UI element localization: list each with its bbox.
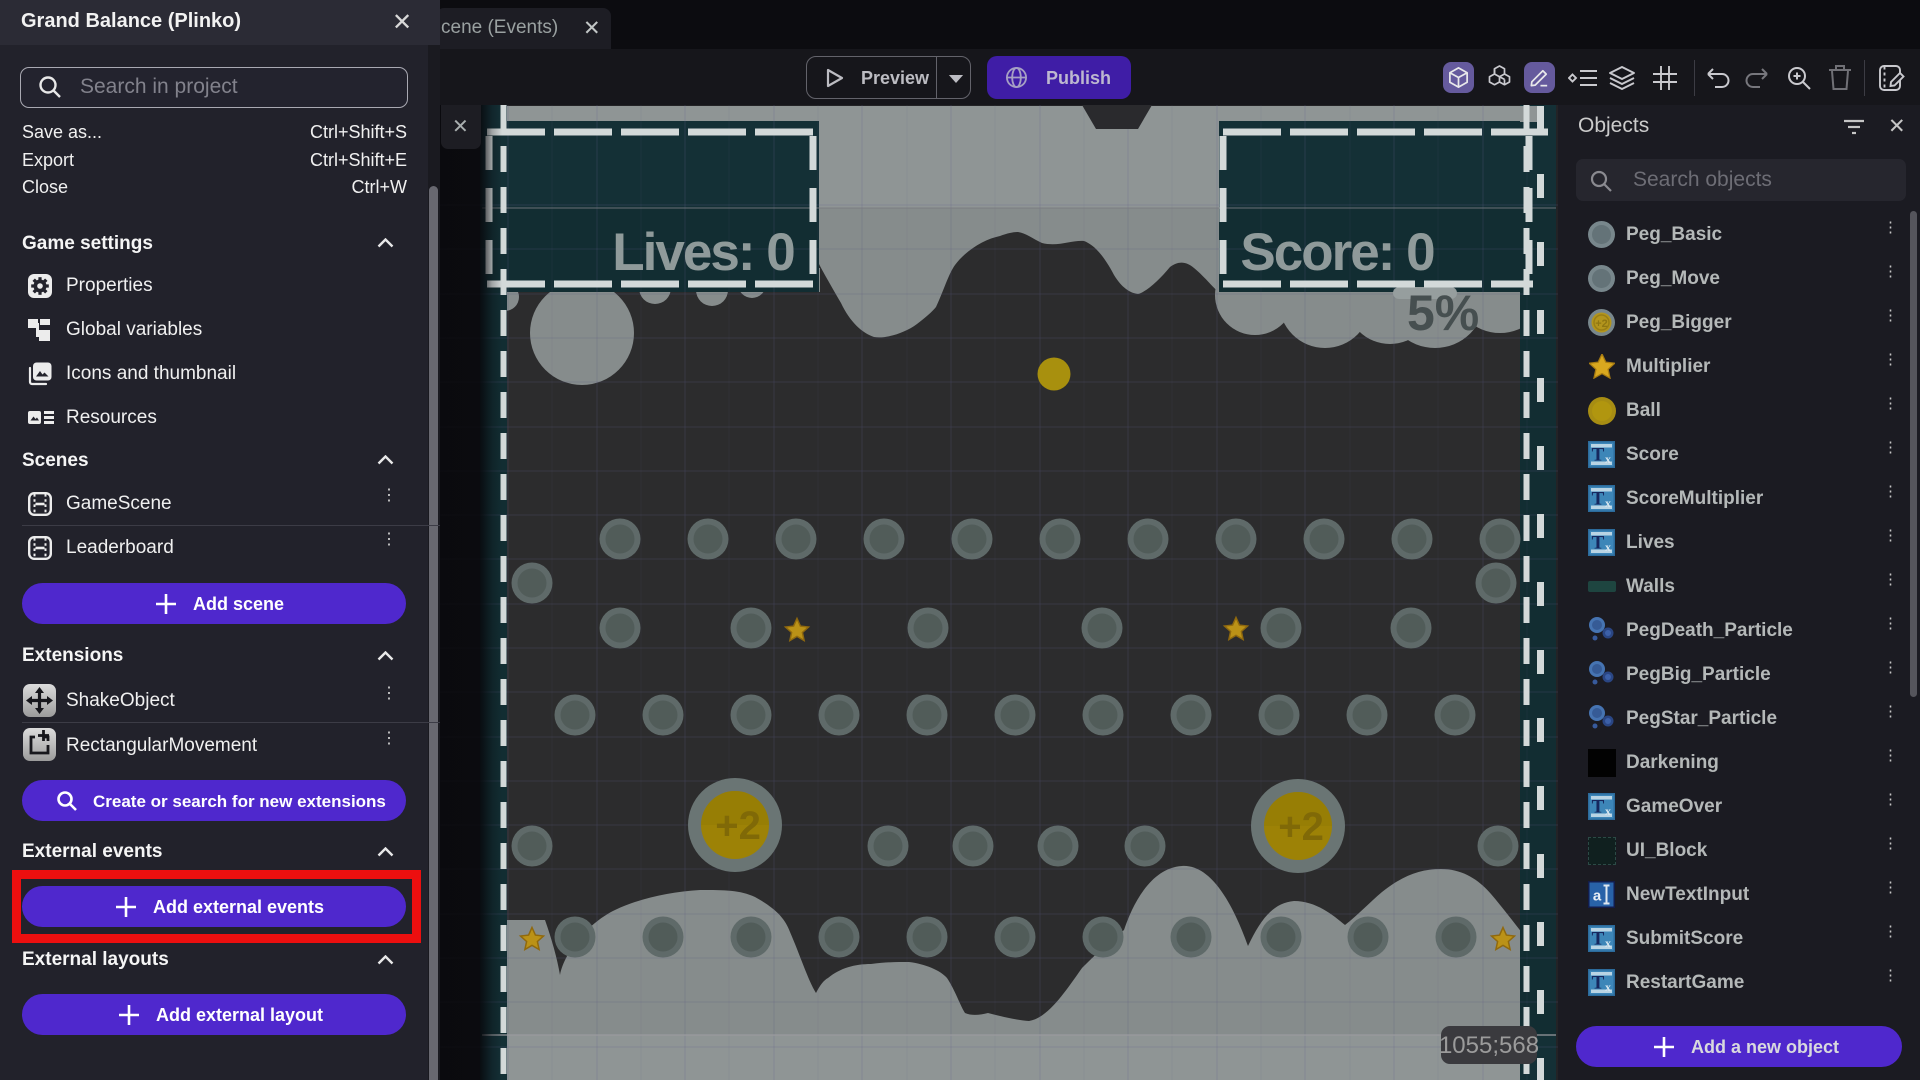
svg-text:a: a bbox=[1593, 888, 1602, 905]
svg-text:1055;568: 1055;568 bbox=[1439, 1032, 1539, 1059]
svg-text:+2: +2 bbox=[1595, 318, 1608, 330]
